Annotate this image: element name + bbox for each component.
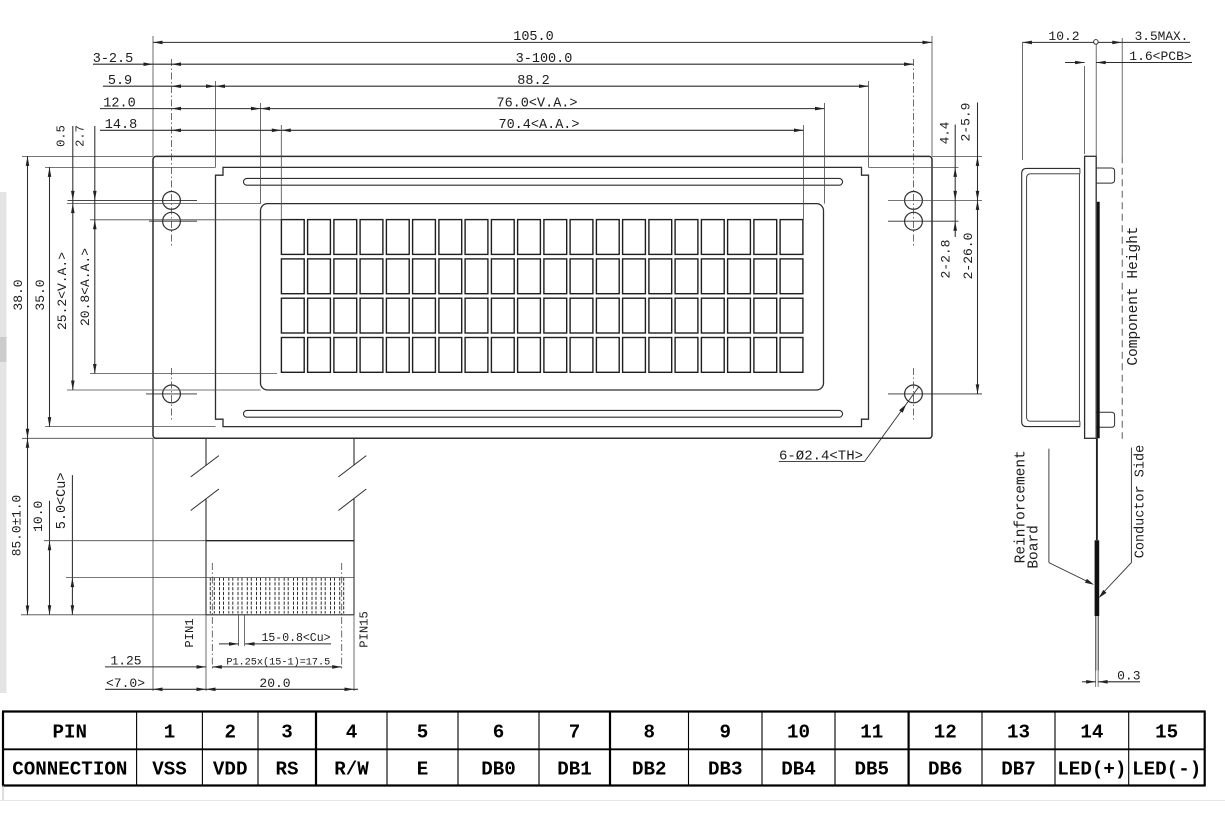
svg-text:35.0: 35.0 [33,279,48,310]
svg-text:12: 12 [934,722,957,744]
svg-text:85.0±1.0: 85.0±1.0 [10,495,25,556]
svg-text:70.4<A.A.>: 70.4<A.A.> [498,118,579,133]
svg-text:DB7: DB7 [1001,758,1036,780]
svg-text:12.0: 12.0 [103,96,135,111]
svg-text:9: 9 [719,722,731,744]
svg-text:Conductor Side: Conductor Side [1134,445,1149,558]
svg-text:76.0<V.A.>: 76.0<V.A.> [496,96,577,111]
svg-text:8: 8 [643,722,655,744]
svg-text:P1.25x(15-1)=17.5: P1.25x(15-1)=17.5 [226,656,330,668]
svg-text:0.5: 0.5 [55,125,69,147]
svg-text:PIN: PIN [53,722,88,744]
svg-text:14: 14 [1080,722,1103,744]
svg-text:DB0: DB0 [481,758,516,780]
svg-text:VDD: VDD [213,758,248,780]
svg-text:10: 10 [787,722,810,744]
svg-text:DB3: DB3 [708,758,743,780]
svg-text:11: 11 [860,722,883,744]
svg-text:6-Ø2.4<TH>: 6-Ø2.4<TH> [779,449,863,465]
svg-text:2-2.8: 2-2.8 [938,239,953,278]
svg-text:5: 5 [417,722,429,744]
svg-text:6: 6 [493,722,505,744]
svg-text:20.8<A.A.>: 20.8<A.A.> [78,248,93,326]
svg-text:10.0: 10.0 [31,501,46,532]
svg-text:0.3: 0.3 [1117,668,1140,683]
svg-text:2.7: 2.7 [74,125,88,147]
svg-text:1: 1 [164,722,176,744]
svg-text:PIN1: PIN1 [183,618,197,647]
svg-text:DB1: DB1 [557,758,592,780]
svg-text:1.6<PCB>: 1.6<PCB> [1129,49,1192,64]
svg-text:10.2: 10.2 [1048,29,1079,44]
svg-text:5.0<Cu>: 5.0<Cu> [55,473,70,530]
svg-text:Board: Board [1027,525,1043,569]
svg-text:2-5.9: 2-5.9 [958,102,973,141]
svg-text:105.0: 105.0 [513,30,554,45]
svg-text:15-0.8<Cu>: 15-0.8<Cu> [261,632,330,645]
svg-text:2-26.0: 2-26.0 [961,233,976,280]
svg-text:2: 2 [224,722,236,744]
svg-text:<7.0>: <7.0> [106,676,145,691]
svg-text:VSS: VSS [152,758,187,780]
svg-text:DB5: DB5 [855,758,890,780]
svg-text:3.5MAX.: 3.5MAX. [1135,29,1189,44]
svg-text:DB6: DB6 [928,758,963,780]
svg-text:DB2: DB2 [632,758,667,780]
svg-text:4.4: 4.4 [939,122,953,145]
svg-text:5.9: 5.9 [108,74,132,89]
svg-text:E: E [417,758,429,780]
svg-text:7: 7 [569,722,581,744]
svg-text:14.8: 14.8 [105,118,137,133]
svg-text:3-2.5: 3-2.5 [93,52,134,67]
svg-text:DB4: DB4 [781,758,816,780]
svg-text:Component Height: Component Height [1126,226,1142,365]
svg-text:CONNECTION: CONNECTION [12,758,127,780]
svg-text:PIN15: PIN15 [358,611,372,648]
svg-text:LED(+): LED(+) [1057,758,1126,780]
svg-text:4: 4 [346,722,358,744]
svg-text:38.0: 38.0 [11,279,26,310]
svg-text:88.2: 88.2 [517,74,549,89]
svg-text:LED(-): LED(-) [1132,758,1201,780]
svg-text:1.25: 1.25 [110,653,141,668]
svg-text:25.2<V.A.>: 25.2<V.A.> [55,252,70,330]
svg-text:20.0: 20.0 [259,676,290,691]
svg-text:3-100.0: 3-100.0 [516,52,573,67]
svg-text:15: 15 [1155,722,1178,744]
svg-text:R/W: R/W [334,758,369,780]
svg-text:13: 13 [1007,722,1030,744]
svg-text:RS: RS [275,758,298,780]
svg-text:3: 3 [281,722,293,744]
